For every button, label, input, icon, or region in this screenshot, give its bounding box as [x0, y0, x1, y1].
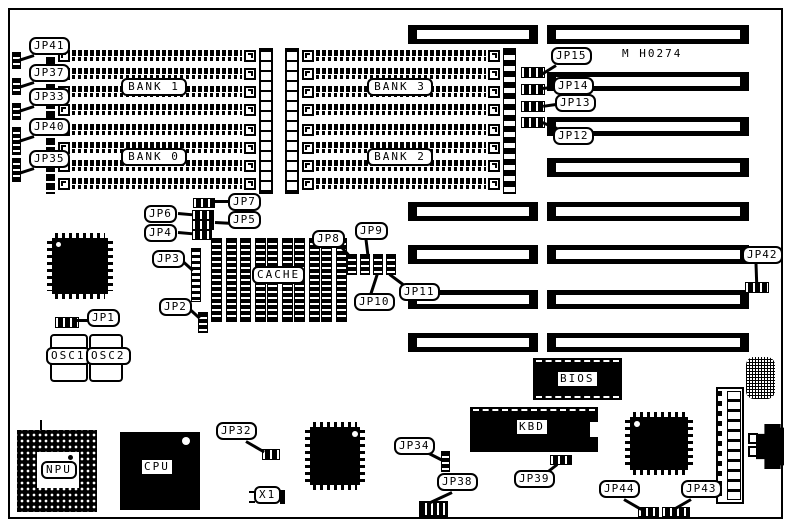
cache-label: CACHE — [252, 266, 305, 284]
jumper-jp42 — [745, 282, 769, 293]
simm-clip — [302, 50, 314, 62]
jumper-jp9 — [360, 254, 370, 275]
simm-clip — [488, 142, 500, 154]
simm-rail — [285, 48, 299, 194]
simm-pins — [316, 124, 486, 136]
jumper-jp3 — [191, 248, 201, 302]
simm-clip — [302, 124, 314, 136]
chip-notch — [590, 422, 598, 437]
callout-jp10: JP10 — [354, 293, 395, 311]
pin1-dot — [634, 421, 640, 427]
callout-jp14: JP14 — [553, 77, 594, 95]
simm-rail — [259, 48, 273, 194]
bank0-label: BANK 0 — [121, 148, 187, 166]
simm-clip — [488, 50, 500, 62]
npu-pin1-tick — [40, 420, 42, 430]
callout-jp8: JP8 — [312, 230, 345, 248]
callout-jp1: JP1 — [87, 309, 120, 327]
board-model-text: M H0274 — [620, 47, 684, 61]
pin1-dot — [56, 242, 61, 247]
isa-slot — [547, 333, 749, 352]
pin1-dot — [68, 455, 73, 460]
isa-slot — [547, 158, 749, 177]
pin1-dot — [182, 437, 190, 445]
callout-jp3: JP3 — [152, 250, 185, 268]
callout-jp5: JP5 — [228, 211, 261, 229]
jumper-jp39 — [550, 455, 572, 465]
simm-clip — [244, 160, 256, 172]
osc1-label: OSC1 — [46, 347, 91, 365]
din-pin — [748, 433, 758, 444]
callout-jp7: JP7 — [228, 193, 261, 211]
simm-clip — [488, 104, 500, 116]
simm-socket — [58, 124, 256, 136]
callout-jp37: JP37 — [29, 64, 70, 82]
jumper-jp5 — [192, 220, 214, 230]
jumper-jp4 — [192, 230, 212, 240]
simm-pins — [316, 104, 486, 116]
crystal-x1: X1 — [254, 486, 281, 504]
isa-slot — [547, 202, 749, 221]
kbd-label: KBD — [517, 420, 547, 434]
isa-slot — [547, 25, 749, 44]
jumper-jp34 — [441, 451, 450, 472]
isa-slot — [408, 202, 538, 221]
callout-jp15: JP15 — [551, 47, 592, 65]
bank2-label: BANK 2 — [367, 148, 433, 166]
callout-jp38: JP38 — [437, 473, 478, 491]
bank3-label: BANK 3 — [367, 78, 433, 96]
simm-pins — [316, 50, 486, 62]
motherboard-diagram: BANK 1 BANK 0 BANK 3 BANK 2 M H0274 — [0, 0, 791, 527]
simm-clip — [488, 124, 500, 136]
jumper-jp7 — [193, 198, 215, 208]
callout-jp44: JP44 — [599, 480, 640, 498]
simm-pins — [72, 50, 242, 62]
simm-clip — [488, 160, 500, 172]
din-pin — [748, 446, 758, 457]
jumper-jp6 — [192, 210, 214, 220]
callout-jp33: JP33 — [29, 88, 70, 106]
simm-clip — [244, 68, 256, 80]
simm-socket — [302, 178, 500, 190]
simm-socket — [302, 104, 500, 116]
callout-jp4: JP4 — [144, 224, 177, 242]
simm-clip — [244, 142, 256, 154]
simm-clip — [244, 86, 256, 98]
cpu-label: CPU — [142, 460, 172, 474]
simm-pins — [72, 104, 242, 116]
callout-jp32: JP32 — [216, 422, 257, 440]
simm-pins — [316, 178, 486, 190]
simm-clip — [488, 178, 500, 190]
cache-chip-column — [211, 238, 237, 322]
jumper-jp35 — [12, 158, 21, 182]
callout-jp2: JP2 — [159, 298, 192, 316]
simm-pins — [72, 178, 242, 190]
callout-jp13: JP13 — [555, 94, 596, 112]
simm-clip — [244, 104, 256, 116]
pin1-dot — [352, 431, 358, 437]
simm-clip — [244, 124, 256, 136]
simm-clip — [244, 50, 256, 62]
qfp-chip — [52, 238, 108, 294]
callout-jp12: JP12 — [553, 127, 594, 145]
callout-tail — [215, 221, 229, 225]
callout-jp39: JP39 — [514, 470, 555, 488]
jumper-jp1 — [55, 317, 79, 328]
simm-rail — [503, 48, 516, 194]
isa-slot — [408, 333, 538, 352]
bios-label: BIOS — [558, 372, 597, 386]
simm-socket — [302, 124, 500, 136]
jumper-jp10 — [373, 254, 383, 275]
simm-clip — [244, 178, 256, 190]
simm-clip — [302, 160, 314, 172]
simm-socket — [58, 50, 256, 62]
simm-socket — [58, 178, 256, 190]
jumper-jp11 — [386, 254, 396, 275]
callout-jp11: JP11 — [399, 283, 440, 301]
callout-jp41: JP41 — [29, 37, 70, 55]
callout-jp6: JP6 — [144, 205, 177, 223]
callout-jp43: JP43 — [681, 480, 722, 498]
jumper-jp38 — [419, 501, 448, 517]
isa-slot — [547, 245, 749, 264]
simm-socket — [302, 50, 500, 62]
simm-clip — [302, 68, 314, 80]
simm-clip — [302, 104, 314, 116]
simm-clip — [58, 178, 70, 190]
isa-slot — [408, 25, 538, 44]
callout-jp42: JP42 — [742, 246, 783, 264]
osc2-label: OSC2 — [86, 347, 131, 365]
callout-jp34: JP34 — [394, 437, 435, 455]
simm-clip — [302, 178, 314, 190]
isa-slot — [547, 290, 749, 309]
callout-jp9: JP9 — [355, 222, 388, 240]
callout-jp40: JP40 — [29, 118, 70, 136]
callout-tail — [215, 200, 229, 203]
simm-clip — [488, 86, 500, 98]
power-connector — [746, 357, 775, 399]
jumper-jp13 — [521, 101, 545, 112]
simm-clip — [302, 142, 314, 154]
npu-label: NPU — [41, 461, 77, 479]
simm-pins — [72, 124, 242, 136]
simm-socket — [58, 104, 256, 116]
simm-clip — [302, 86, 314, 98]
simm-clip — [488, 68, 500, 80]
callout-jp35: JP35 — [29, 150, 70, 168]
isa-slot — [408, 245, 538, 264]
bank1-label: BANK 1 — [121, 78, 187, 96]
